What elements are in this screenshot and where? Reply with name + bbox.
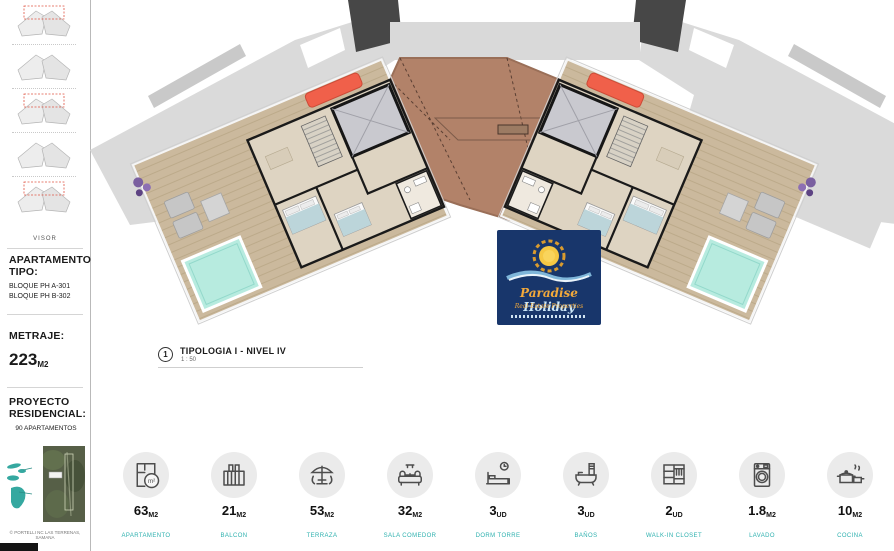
apartamento-tipo-section: APARTAMENTO TIPO: BLOQUE PH A-301 BLOQUE… xyxy=(9,254,83,301)
legend-item-lavado: 1.8M2 LAVADO xyxy=(724,452,800,539)
logo-subtitle: Real Estate Properties xyxy=(497,303,601,310)
bed-clock-icon xyxy=(483,460,513,490)
plan-title: TIPOLOGIA I - NIVEL IV xyxy=(180,346,286,356)
svg-text:m²: m² xyxy=(148,478,155,485)
visor-thumbnail[interactable] xyxy=(12,134,76,174)
visor-panel xyxy=(6,2,82,220)
proyecto-value: 90 APARTAMENTOS xyxy=(9,425,83,432)
washer-icon xyxy=(747,460,777,490)
divider xyxy=(12,44,76,45)
metraje-heading: METRAJE: xyxy=(9,330,83,342)
copyright-text: © PORTELLI NC LAS TERRENAS, SAMANA xyxy=(0,530,90,540)
divider xyxy=(12,88,76,89)
legend-item-apartamento: m² 63M2 APARTAMENTO xyxy=(108,452,184,539)
legend-row: m² 63M2 APARTAMENTO 21M2 BALCON 53M2 TER… xyxy=(108,452,888,539)
legend-item-balcon: 21M2 BALCON xyxy=(196,452,272,539)
logo-tagline-strip xyxy=(511,315,587,318)
bathtub-icon xyxy=(571,460,601,490)
metraje-value: 223M2 xyxy=(9,350,83,370)
cookware-icon xyxy=(835,460,865,490)
legend-item-banos: 3UD BAÑOS xyxy=(548,452,624,539)
legend-item-sala-comedor: 32M2 SALA COMEDOR xyxy=(372,452,448,539)
caribbean-map-image xyxy=(5,454,34,512)
legend-item-walkin-closet: 2UD WALK-IN CLOSET xyxy=(636,452,712,539)
bloque-a-value: BLOQUE PH A-301 xyxy=(9,282,83,291)
paradise-holiday-logo: Paradise Holiday Real Estate Properties xyxy=(497,230,601,325)
plan-scale: 1 : 50 xyxy=(181,357,196,363)
balcony-icon xyxy=(219,460,249,490)
floorplan-icon: m² xyxy=(131,460,161,490)
divider xyxy=(7,314,83,315)
proyecto-heading: PROYECTO RESIDENCIAL: xyxy=(9,396,83,420)
visor-thumbnail[interactable] xyxy=(12,46,76,86)
closet-icon xyxy=(659,460,689,490)
visor-thumbnail[interactable] xyxy=(12,90,76,130)
legend-item-dormitorios: 3UD DORM TORRE xyxy=(460,452,536,539)
terrace-umbrella-icon xyxy=(307,460,337,490)
satellite-image xyxy=(43,446,85,522)
apartamento-tipo-heading: APARTAMENTO TIPO: xyxy=(9,254,83,278)
divider xyxy=(7,248,83,249)
bloque-b-value: BLOQUE PH B-302 xyxy=(9,292,83,301)
legend-item-cocina: 10M2 COCINA xyxy=(812,452,888,539)
metraje-section: METRAJE: 223M2 xyxy=(9,330,83,370)
location-maps xyxy=(4,444,86,524)
divider xyxy=(7,387,83,388)
divider xyxy=(12,176,76,177)
divider xyxy=(12,132,76,133)
plan-sheet: { "sidebar": { "visor_label": "VISOR", "… xyxy=(0,0,894,551)
visor-thumbnail[interactable] xyxy=(12,178,76,218)
proyecto-section: PROYECTO RESIDENCIAL: 90 APARTAMENTOS xyxy=(9,396,83,432)
plan-title-block: 1 TIPOLOGIA I - NIVEL IV 1 : 50 xyxy=(158,345,363,368)
legend-item-terraza: 53M2 TERRAZA xyxy=(284,452,360,539)
visor-label: VISOR xyxy=(0,236,90,242)
roof-vent xyxy=(498,125,528,134)
footer-bar xyxy=(0,543,38,551)
visor-thumbnail[interactable] xyxy=(12,2,76,42)
sofa-icon xyxy=(395,460,425,490)
metraje-unit: M2 xyxy=(37,360,48,369)
plan-number-marker: 1 xyxy=(158,347,173,362)
sidebar: VISOR APARTAMENTO TIPO: BLOQUE PH A-301 … xyxy=(0,0,91,551)
